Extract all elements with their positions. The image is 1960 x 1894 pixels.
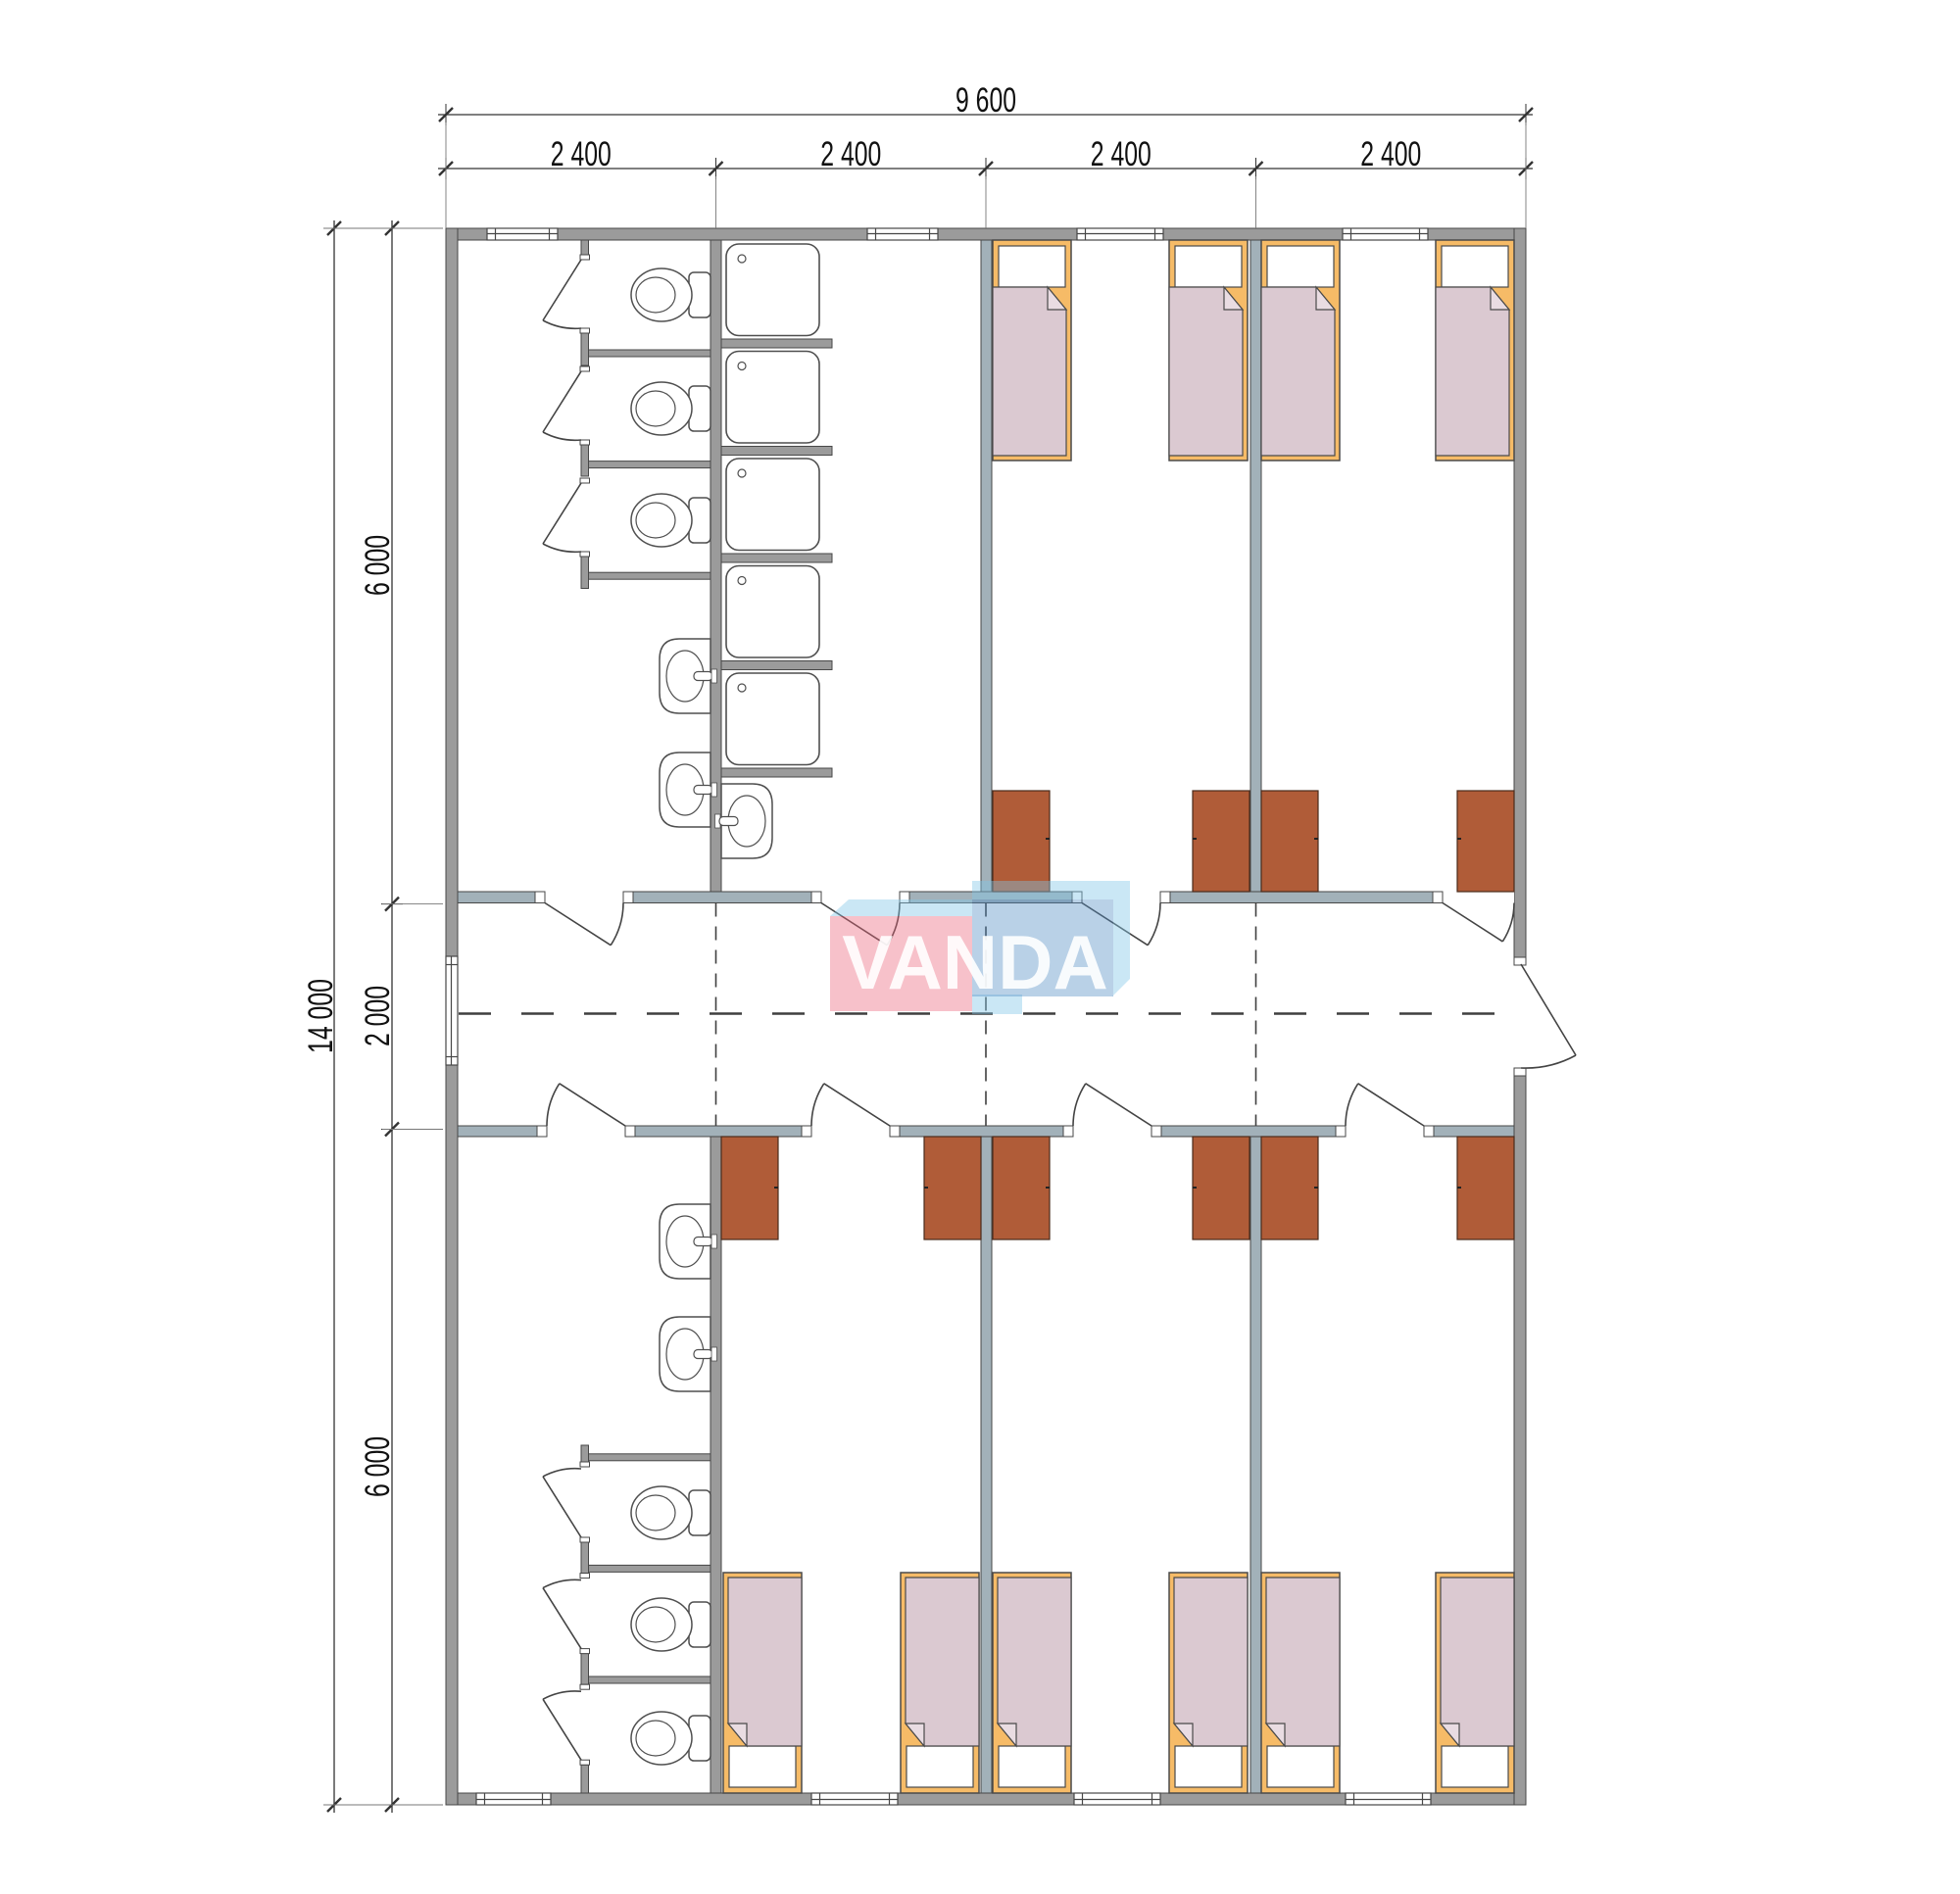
svg-text:2 400: 2 400 [551, 135, 612, 173]
svg-text:2 400: 2 400 [1360, 135, 1421, 173]
svg-text:6 000: 6 000 [359, 535, 397, 596]
svg-text:2 000: 2 000 [359, 986, 397, 1046]
svg-text:6 000: 6 000 [359, 1436, 397, 1497]
svg-text:2 400: 2 400 [820, 135, 881, 173]
svg-text:9 600: 9 600 [955, 81, 1016, 120]
svg-text:14 000: 14 000 [302, 979, 340, 1053]
svg-text:VANDA: VANDA [842, 919, 1108, 1005]
svg-text:2 400: 2 400 [1091, 135, 1151, 173]
